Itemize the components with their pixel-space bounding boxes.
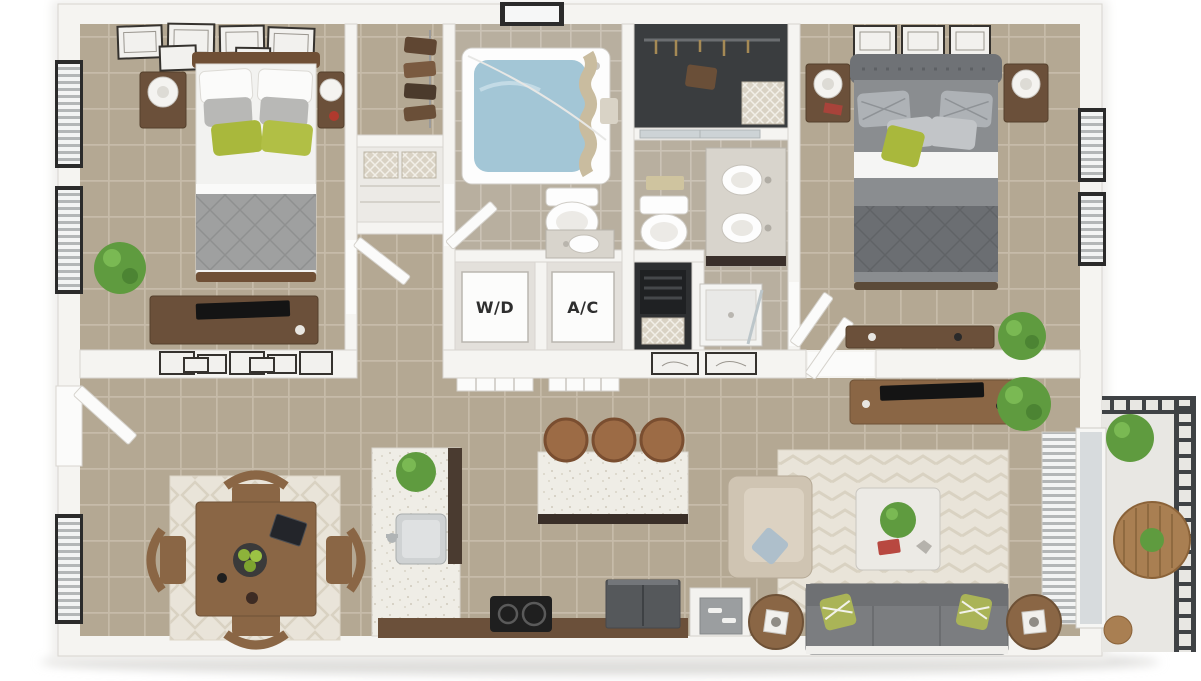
sink-faucet [563, 241, 569, 247]
utility-closets: W/D A/C [462, 270, 686, 344]
bar-stool [545, 419, 587, 461]
floor-plan-canvas: W/D A/C [0, 0, 1201, 681]
double-vanity [706, 148, 786, 266]
balcony-stool [1104, 616, 1132, 644]
bathroom-1-window [500, 2, 564, 26]
laundry-bifold-doors [457, 378, 533, 391]
bathtub [462, 48, 610, 184]
bedroom-1-window-lower [55, 186, 83, 294]
floor-plan: W/D A/C [0, 0, 1201, 681]
armchair [728, 476, 812, 578]
flower-vase [329, 111, 339, 121]
dining-window [55, 514, 83, 624]
balcony-plant [1106, 414, 1154, 462]
upholstered-headboard [850, 54, 1002, 84]
folded-clothes [685, 64, 718, 90]
towel-bar [646, 176, 684, 190]
bed-base [854, 282, 998, 290]
towel-shelf [600, 98, 618, 124]
bed-1 [192, 52, 320, 282]
ac-label: A/C [567, 298, 598, 317]
sink-faucet [765, 225, 772, 232]
wicker-basket [402, 152, 436, 178]
sofa [806, 584, 1008, 654]
potted-plant [94, 242, 146, 294]
wicker-basket [364, 152, 398, 178]
island-base [538, 514, 688, 524]
coffee-table [856, 488, 940, 570]
closet-dresser [742, 82, 784, 124]
nightstand-right [318, 72, 344, 128]
ac-bifold-doors [549, 378, 619, 391]
footboard [196, 272, 316, 282]
bedroom-2-window-lower [1078, 192, 1106, 266]
side-table-left [749, 595, 803, 649]
vanity-1 [546, 230, 614, 258]
folded-sheet [854, 152, 998, 178]
tall-cabinets [448, 448, 462, 564]
bed-2 [850, 54, 1002, 290]
accent-pillow [260, 119, 313, 156]
sliding-door-blinds [1042, 432, 1076, 624]
refrigerator [606, 580, 680, 628]
nightstand-left [140, 72, 186, 128]
potted-plant [998, 312, 1046, 360]
desk-with-tv [150, 296, 318, 344]
accent-pillow [210, 119, 263, 156]
master-dresser [846, 326, 994, 348]
washer-dryer-label: W/D [476, 298, 514, 317]
storage-niche [640, 270, 686, 344]
counter-plant [396, 452, 436, 492]
kitchen-island [538, 419, 688, 524]
sink-faucet [765, 177, 772, 184]
nightstand-right [1004, 64, 1048, 122]
dining-area [151, 475, 361, 645]
balcony-sliding-door [1042, 428, 1106, 628]
bar-stool [593, 419, 635, 461]
bedroom-2-window-upper [1078, 108, 1106, 182]
table-plant [1140, 528, 1164, 552]
nightstand-left [806, 64, 850, 122]
wall-art-frames-dining [160, 352, 332, 374]
side-table-right [1007, 595, 1061, 649]
bedroom-1-window-upper [55, 60, 83, 168]
bar-stool [641, 419, 683, 461]
table-plant [880, 502, 916, 538]
wall-art-frames-bedroom-2 [854, 26, 990, 56]
toilet-2 [640, 176, 688, 250]
tv-console [850, 380, 1016, 424]
wicker-basket [642, 318, 684, 344]
table-lamp [320, 79, 342, 101]
bistro-table [1114, 502, 1190, 578]
shower-curtain [585, 54, 591, 174]
built-in-desk-niche [690, 588, 750, 636]
shower-drain [728, 312, 734, 318]
tv [196, 300, 291, 319]
cooktop [490, 596, 552, 632]
walk-in-shower [700, 284, 762, 346]
potted-plant [997, 377, 1051, 431]
